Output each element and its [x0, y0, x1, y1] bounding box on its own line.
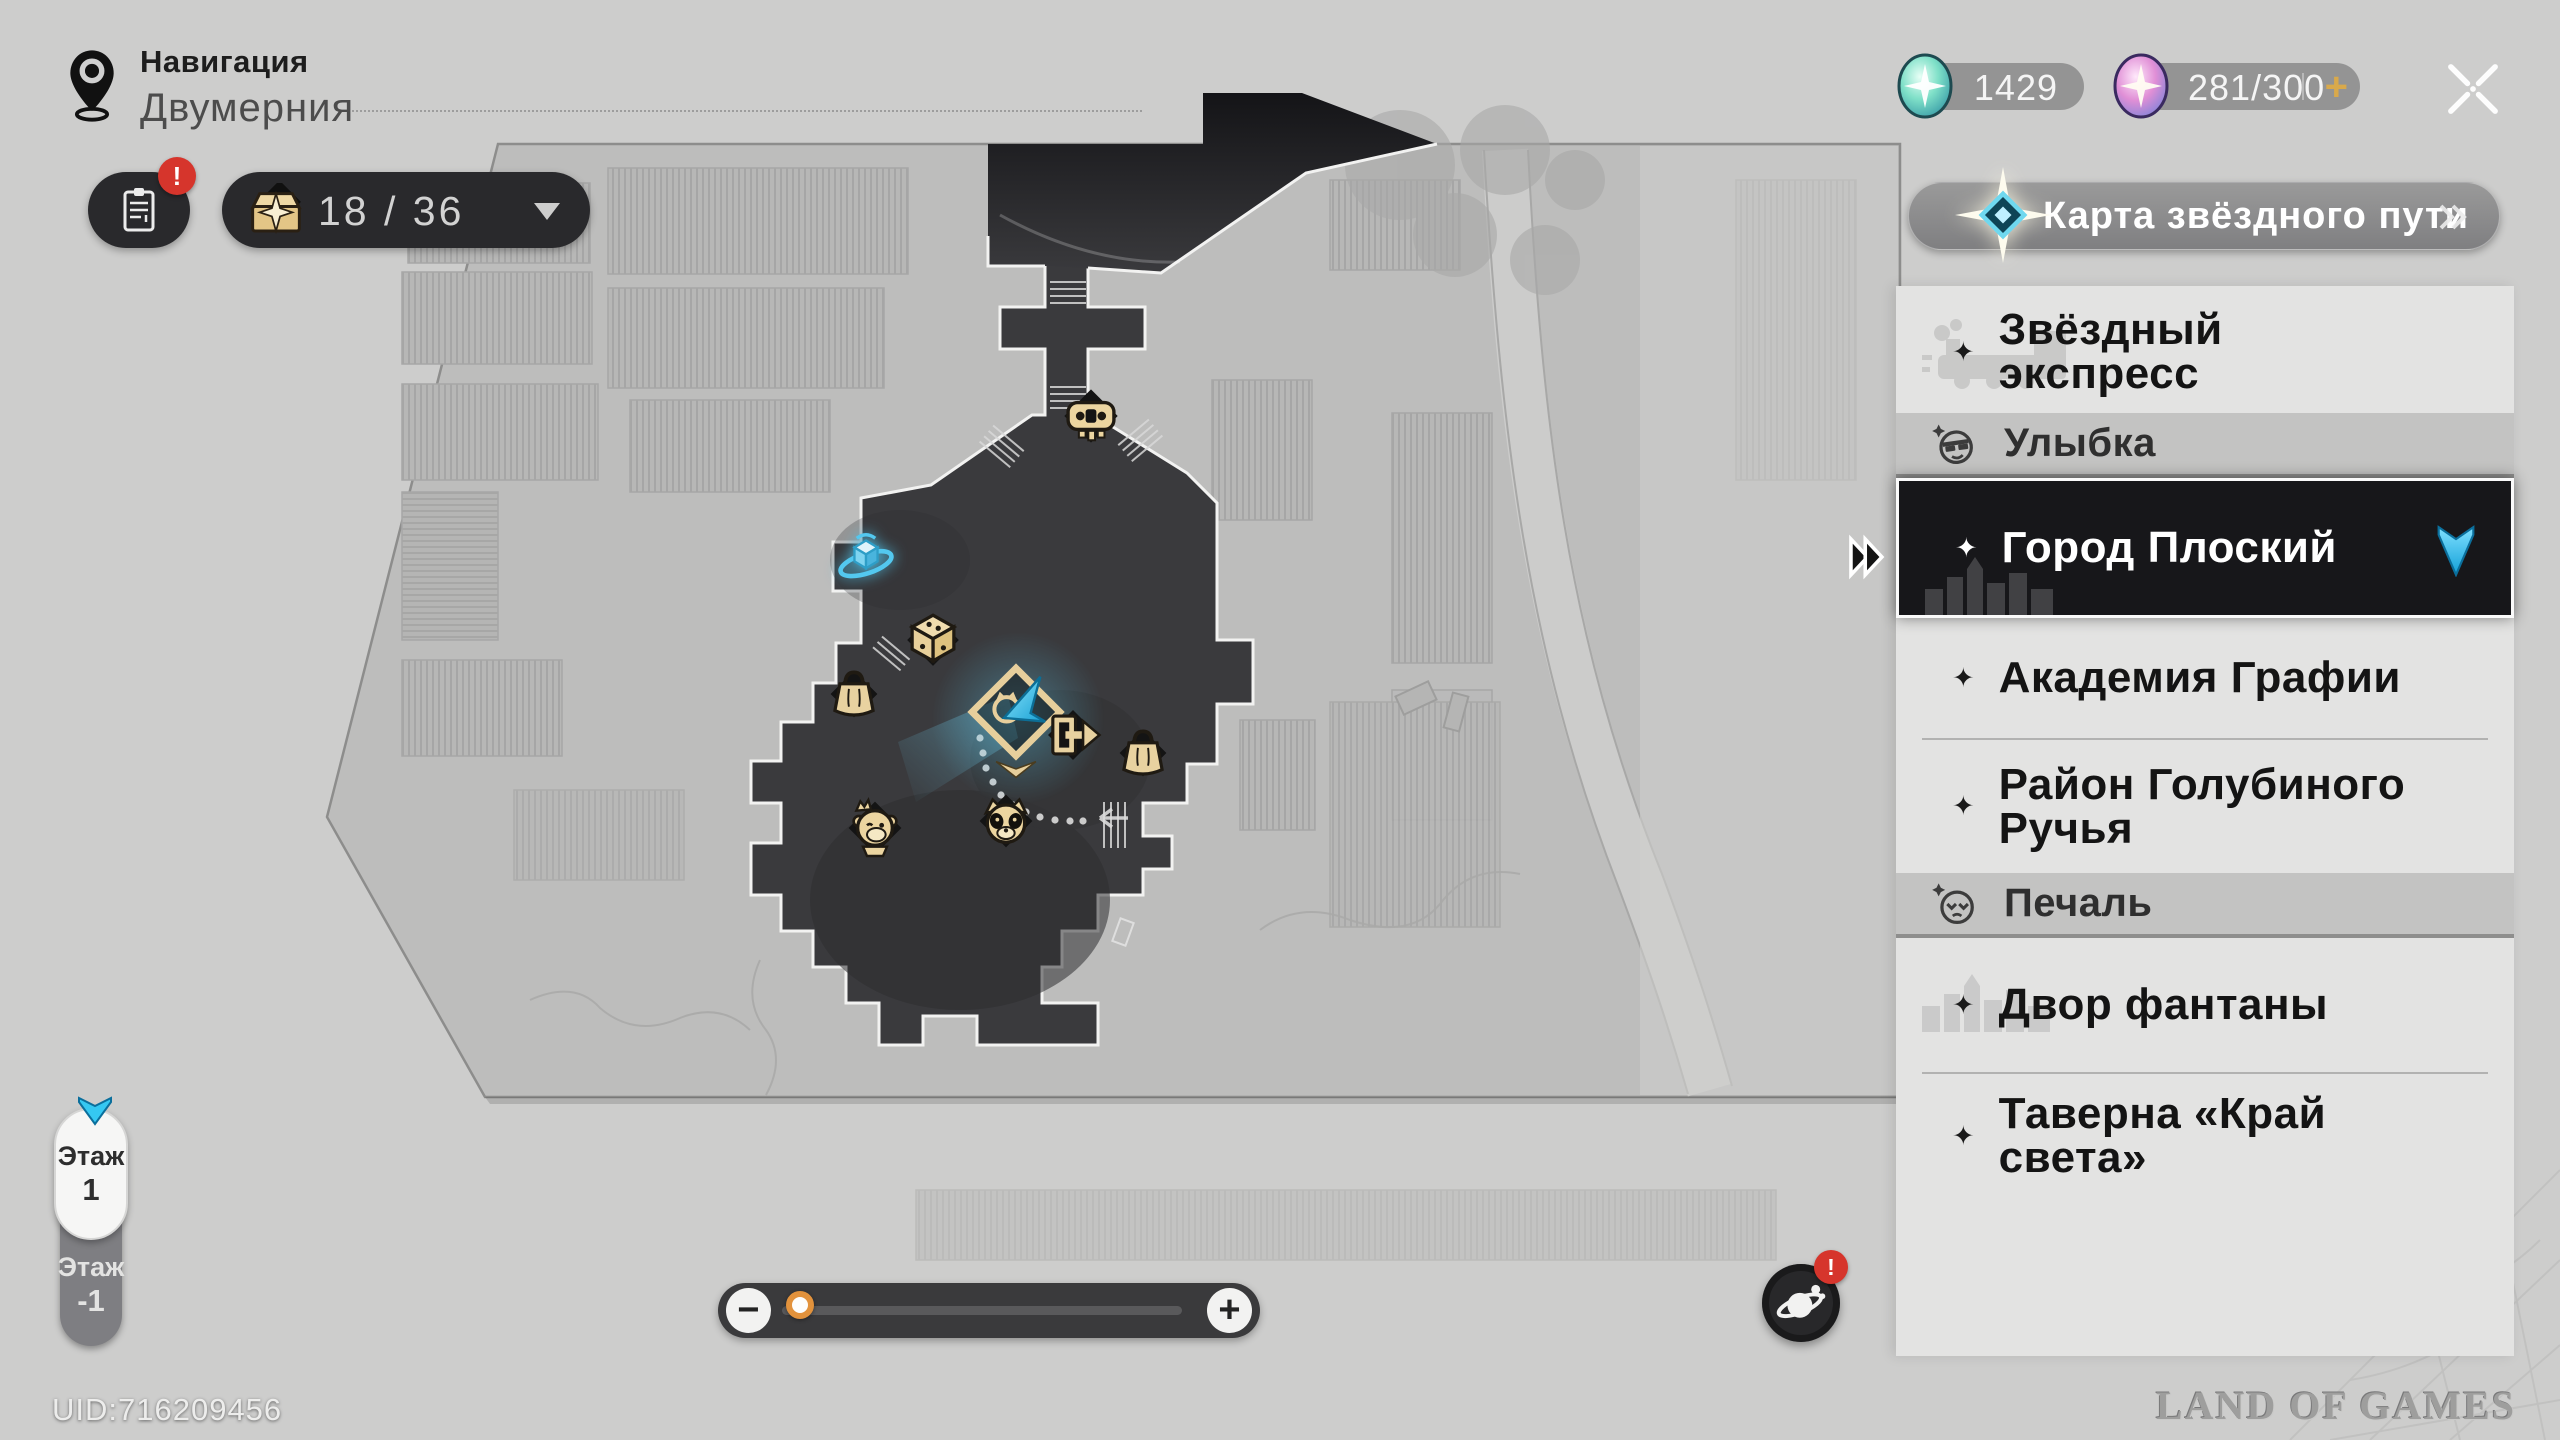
list-item-label: Двор фантаны [1999, 983, 2329, 1027]
section-smile: Улыбка [1896, 413, 2514, 478]
chest-icon [248, 183, 304, 237]
exit-door-icon[interactable] [1044, 706, 1102, 764]
raccoon-npc-icon[interactable] [974, 789, 1038, 853]
list-item-grafia-academy[interactable]: ✦ Академия Графии [1896, 618, 2514, 738]
star-bullet: ✦ [1952, 337, 1975, 368]
trailblaze-power-counter[interactable]: 281/300 + [2118, 63, 2360, 110]
sad-face-icon [1930, 878, 1982, 930]
zoom-track[interactable] [782, 1306, 1182, 1315]
star-rail-map-label: Карта звёздного пути [2043, 195, 2469, 238]
trailblaze-power-icon [2112, 52, 2170, 120]
list-item-label: Таверна «Край света» [1999, 1092, 2429, 1180]
section-sadness: Печаль [1896, 873, 2514, 938]
zoom-in-button[interactable]: + [1207, 1288, 1252, 1333]
star-bullet: ✦ [1952, 1121, 1975, 1152]
list-item-city-flat-selected[interactable]: ✦ Город Плоский [1896, 478, 2514, 618]
clipboard-icon [117, 186, 161, 234]
close-icon [2442, 58, 2504, 120]
shop-bag-icon[interactable] [826, 666, 882, 722]
list-item-edge-tavern[interactable]: ✦ Таверна «Край света» [1896, 1074, 2514, 1198]
zoom-out-button[interactable]: − [726, 1288, 771, 1333]
plus-icon: + [1218, 1289, 1240, 1332]
waypoint-chevron-icon [993, 758, 1039, 782]
star-bullet: ✦ [1952, 663, 1975, 694]
current-location-marker-icon [2435, 525, 2477, 577]
section-label: Улыбка [2004, 421, 2156, 466]
chest-counter-dropdown[interactable]: 18 / 36 [222, 172, 590, 248]
floor-selector: Этаж -1 Этаж 1 [52, 1106, 130, 1352]
nav-title: Навигация [140, 44, 309, 80]
chest-count: 18 / 36 [318, 188, 464, 235]
list-item-label: Район Голубиного Ручья [1999, 763, 2429, 851]
stellar-jade-value: 1429 [1974, 67, 2058, 109]
star-bullet: ✦ [1952, 990, 1975, 1021]
floor-value: -1 [77, 1283, 105, 1319]
divider [2302, 73, 2304, 100]
planet-icon [1775, 1277, 1827, 1329]
list-item-label: Академия Графии [1999, 656, 2401, 700]
list-item-star-express[interactable]: ✦ Звёздный экспресс [1896, 291, 2514, 413]
floor-label: Этаж [58, 1141, 125, 1172]
location-pin-icon [66, 48, 118, 122]
watermark: LAND OF GAMES [2156, 1382, 2516, 1429]
list-item-dove-creek[interactable]: ✦ Район Голубиного Ручья [1896, 740, 2514, 873]
floor-value: 1 [82, 1172, 99, 1208]
add-button[interactable]: + [2325, 65, 2348, 110]
quest-log-button[interactable]: ! [88, 172, 190, 248]
stellar-jade-icon [1896, 52, 1954, 120]
alert-badge: ! [158, 157, 196, 195]
space-anchor-icon[interactable] [836, 529, 896, 589]
smile-face-icon [1930, 418, 1982, 470]
current-floor-marker-icon [76, 1096, 114, 1126]
floor-label: Этаж [58, 1252, 125, 1283]
zoom-knob[interactable] [786, 1291, 814, 1319]
alert-badge: ! [1814, 1250, 1848, 1284]
floor-minus1-button[interactable]: Этаж -1 [54, 1252, 128, 1319]
selected-pointer-icon [1846, 532, 1894, 582]
star-bullet: ✦ [1952, 791, 1975, 822]
chevron-right-icon [2439, 204, 2473, 230]
star-diamond-icon [1955, 167, 2051, 263]
chevron-down-icon [534, 203, 560, 220]
list-item-label: Город Плоский [2002, 526, 2337, 570]
region-list-panel: ✦ Звёздный экспресс Улыбка ✦ Город Плоск… [1896, 286, 2514, 1356]
location-name: Двумерния [140, 86, 354, 131]
divider-dotted [352, 110, 1142, 112]
monkey-npc-icon[interactable] [843, 796, 907, 860]
robot-vendor-icon[interactable] [1060, 385, 1122, 447]
list-item-label: Звёздный экспресс [1999, 308, 2429, 396]
stellar-jade-counter[interactable]: 1429 [1902, 63, 2084, 110]
section-label: Печаль [2004, 881, 2152, 926]
shop-bag-icon[interactable] [1115, 725, 1171, 781]
close-button[interactable] [2442, 58, 2504, 120]
star-bullet: ✦ [1955, 533, 1978, 564]
zoom-slider[interactable]: − + [718, 1283, 1260, 1338]
star-rail-map-button[interactable]: Карта звёздного пути [1908, 182, 2500, 250]
minus-icon: − [737, 1289, 759, 1332]
universe-map-button[interactable]: ! [1762, 1264, 1840, 1342]
list-item-fountain-court[interactable]: ✦ Двор фантаны [1896, 938, 2514, 1072]
treasure-box-icon[interactable] [903, 610, 963, 670]
trailblaze-power-value: 281/300 [2188, 67, 2325, 109]
floor-1-button[interactable]: Этаж 1 [54, 1108, 128, 1240]
uid-label: UID:716209456 [52, 1392, 282, 1428]
